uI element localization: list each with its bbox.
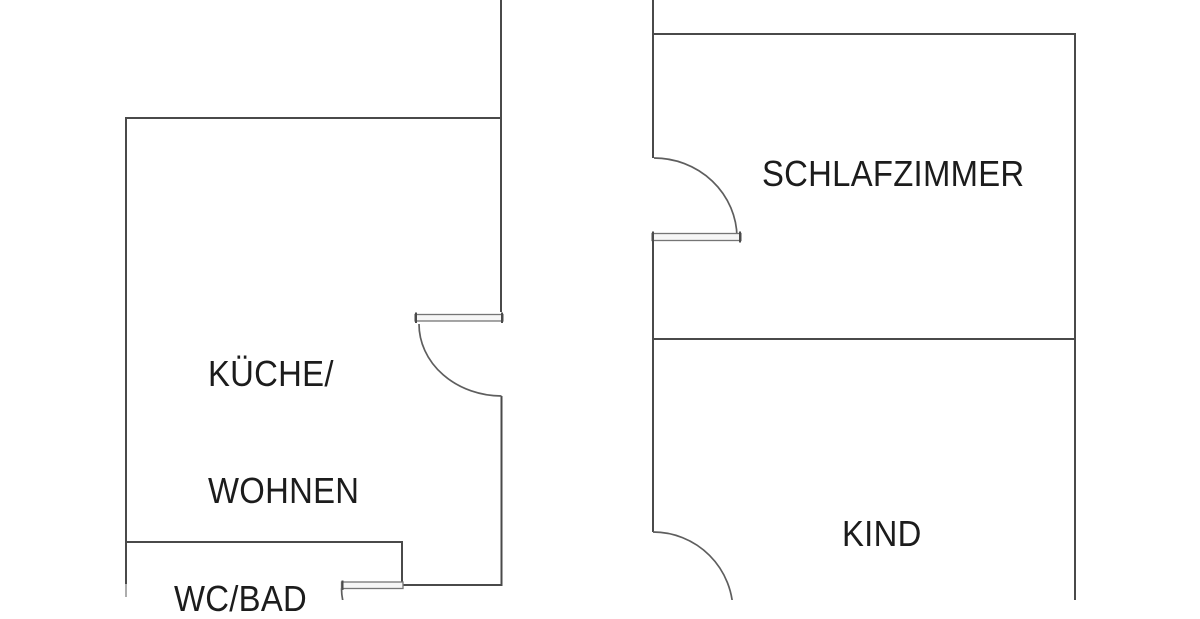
door-kind-swing-arc: [653, 532, 733, 600]
floor-plan: KÜCHE/ WOHNEN SCHLAFZIMMER KIND WC/BAD: [0, 0, 1200, 600]
floor-plan-drawing: [0, 0, 1200, 600]
room-label-kueche-wohnen: KÜCHE/ WOHNEN: [208, 276, 359, 588]
door-kueche-leaf: [415, 315, 503, 322]
door-kueche-swing-arc: [419, 324, 502, 396]
room-label-wc-bad: WC/BAD: [174, 579, 307, 618]
door-schlafzimmer-leaf: [652, 234, 741, 241]
room-label-schlafzimmer: SCHLAFZIMMER: [762, 154, 1024, 193]
room-label-kind: KIND: [842, 514, 922, 553]
door-schlafzimmer-swing-arc: [654, 158, 737, 237]
room-label-kueche-line2: WOHNEN: [208, 471, 359, 510]
room-label-kueche-line1: KÜCHE/: [208, 354, 359, 393]
door-wcbad-swing-arc: [342, 589, 403, 601]
